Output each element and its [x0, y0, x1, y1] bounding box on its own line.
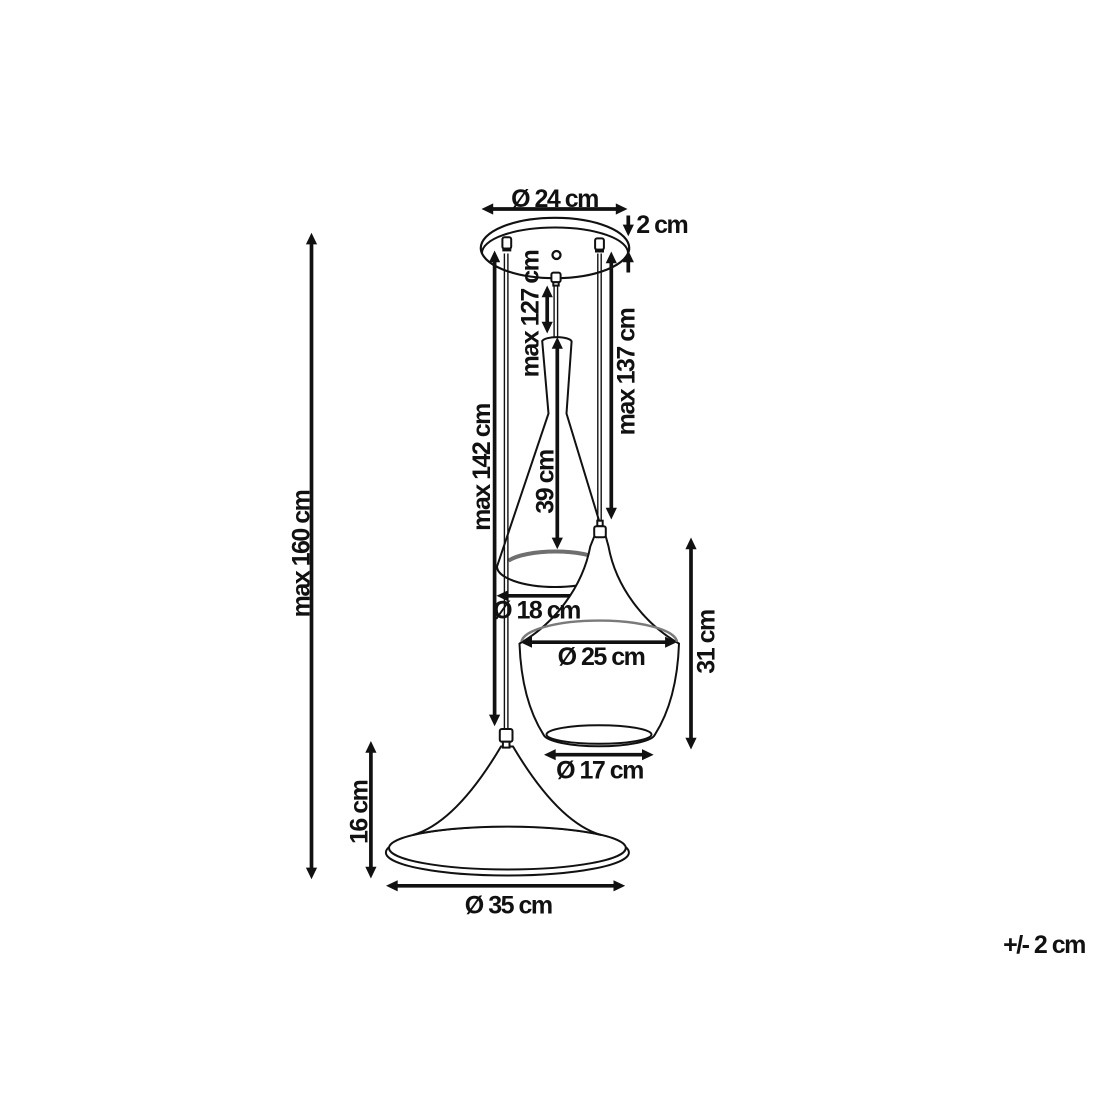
- svg-text:Ø 17 cm: Ø 17 cm: [556, 757, 643, 785]
- svg-text:max 160 cm: max 160 cm: [287, 490, 315, 617]
- svg-text:16 cm: 16 cm: [345, 780, 373, 844]
- svg-text:Ø 35 cm: Ø 35 cm: [465, 892, 552, 920]
- svg-text:39 cm: 39 cm: [531, 450, 559, 514]
- svg-text:Ø 24 cm: Ø 24 cm: [511, 185, 598, 213]
- svg-text:2 cm: 2 cm: [636, 211, 687, 239]
- svg-text:max 127 cm: max 127 cm: [517, 250, 545, 377]
- svg-text:max 142 cm: max 142 cm: [468, 404, 496, 531]
- svg-text:Ø 25 cm: Ø 25 cm: [558, 643, 645, 671]
- svg-text:Ø 18 cm: Ø 18 cm: [493, 597, 580, 625]
- svg-text:max 137 cm: max 137 cm: [612, 308, 640, 435]
- svg-text:+/- 2 cm: +/- 2 cm: [1003, 931, 1085, 959]
- svg-text:31 cm: 31 cm: [693, 610, 721, 674]
